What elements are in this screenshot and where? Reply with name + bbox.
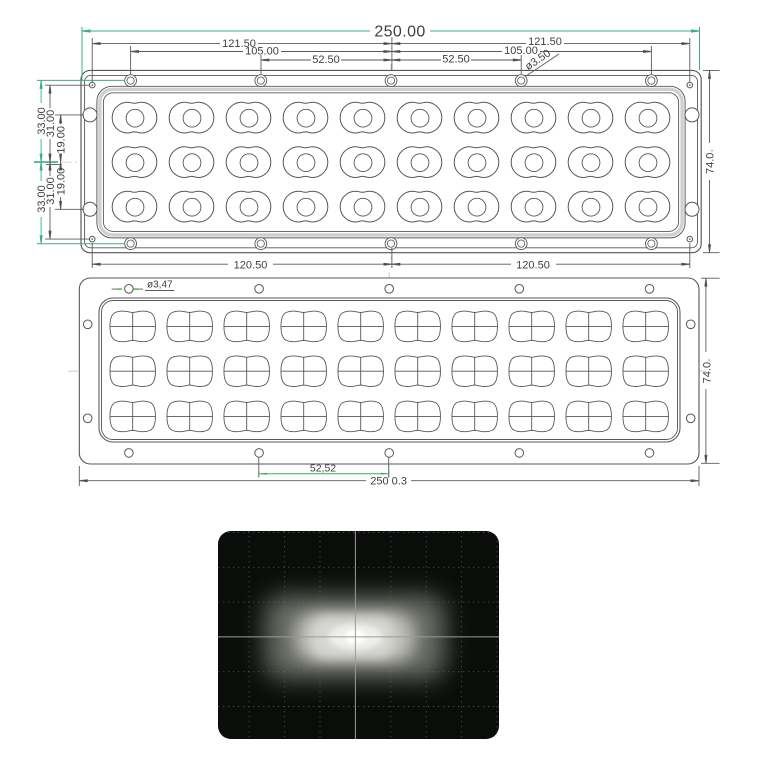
svg-text:52.50: 52.50 xyxy=(442,54,470,66)
svg-text:120.50: 120.50 xyxy=(234,259,268,271)
svg-text:74.0˓: 74.0˓ xyxy=(705,149,717,174)
svg-text:105.00: 105.00 xyxy=(245,46,279,58)
svg-text:19.00: 19.00 xyxy=(56,126,68,154)
svg-text:74.0˓: 74.0˓ xyxy=(701,358,713,383)
svg-text:120.50: 120.50 xyxy=(516,259,550,271)
svg-text:52,52: 52,52 xyxy=(310,463,336,475)
svg-text:105.00: 105.00 xyxy=(504,45,538,57)
svg-text:250 0.3: 250 0.3 xyxy=(370,476,407,488)
svg-text:52.50: 52.50 xyxy=(312,54,340,66)
svg-text:250.00: 250.00 xyxy=(374,24,425,41)
svg-text:19.00: 19.00 xyxy=(56,168,68,196)
svg-text:ø3,47: ø3,47 xyxy=(147,280,173,291)
